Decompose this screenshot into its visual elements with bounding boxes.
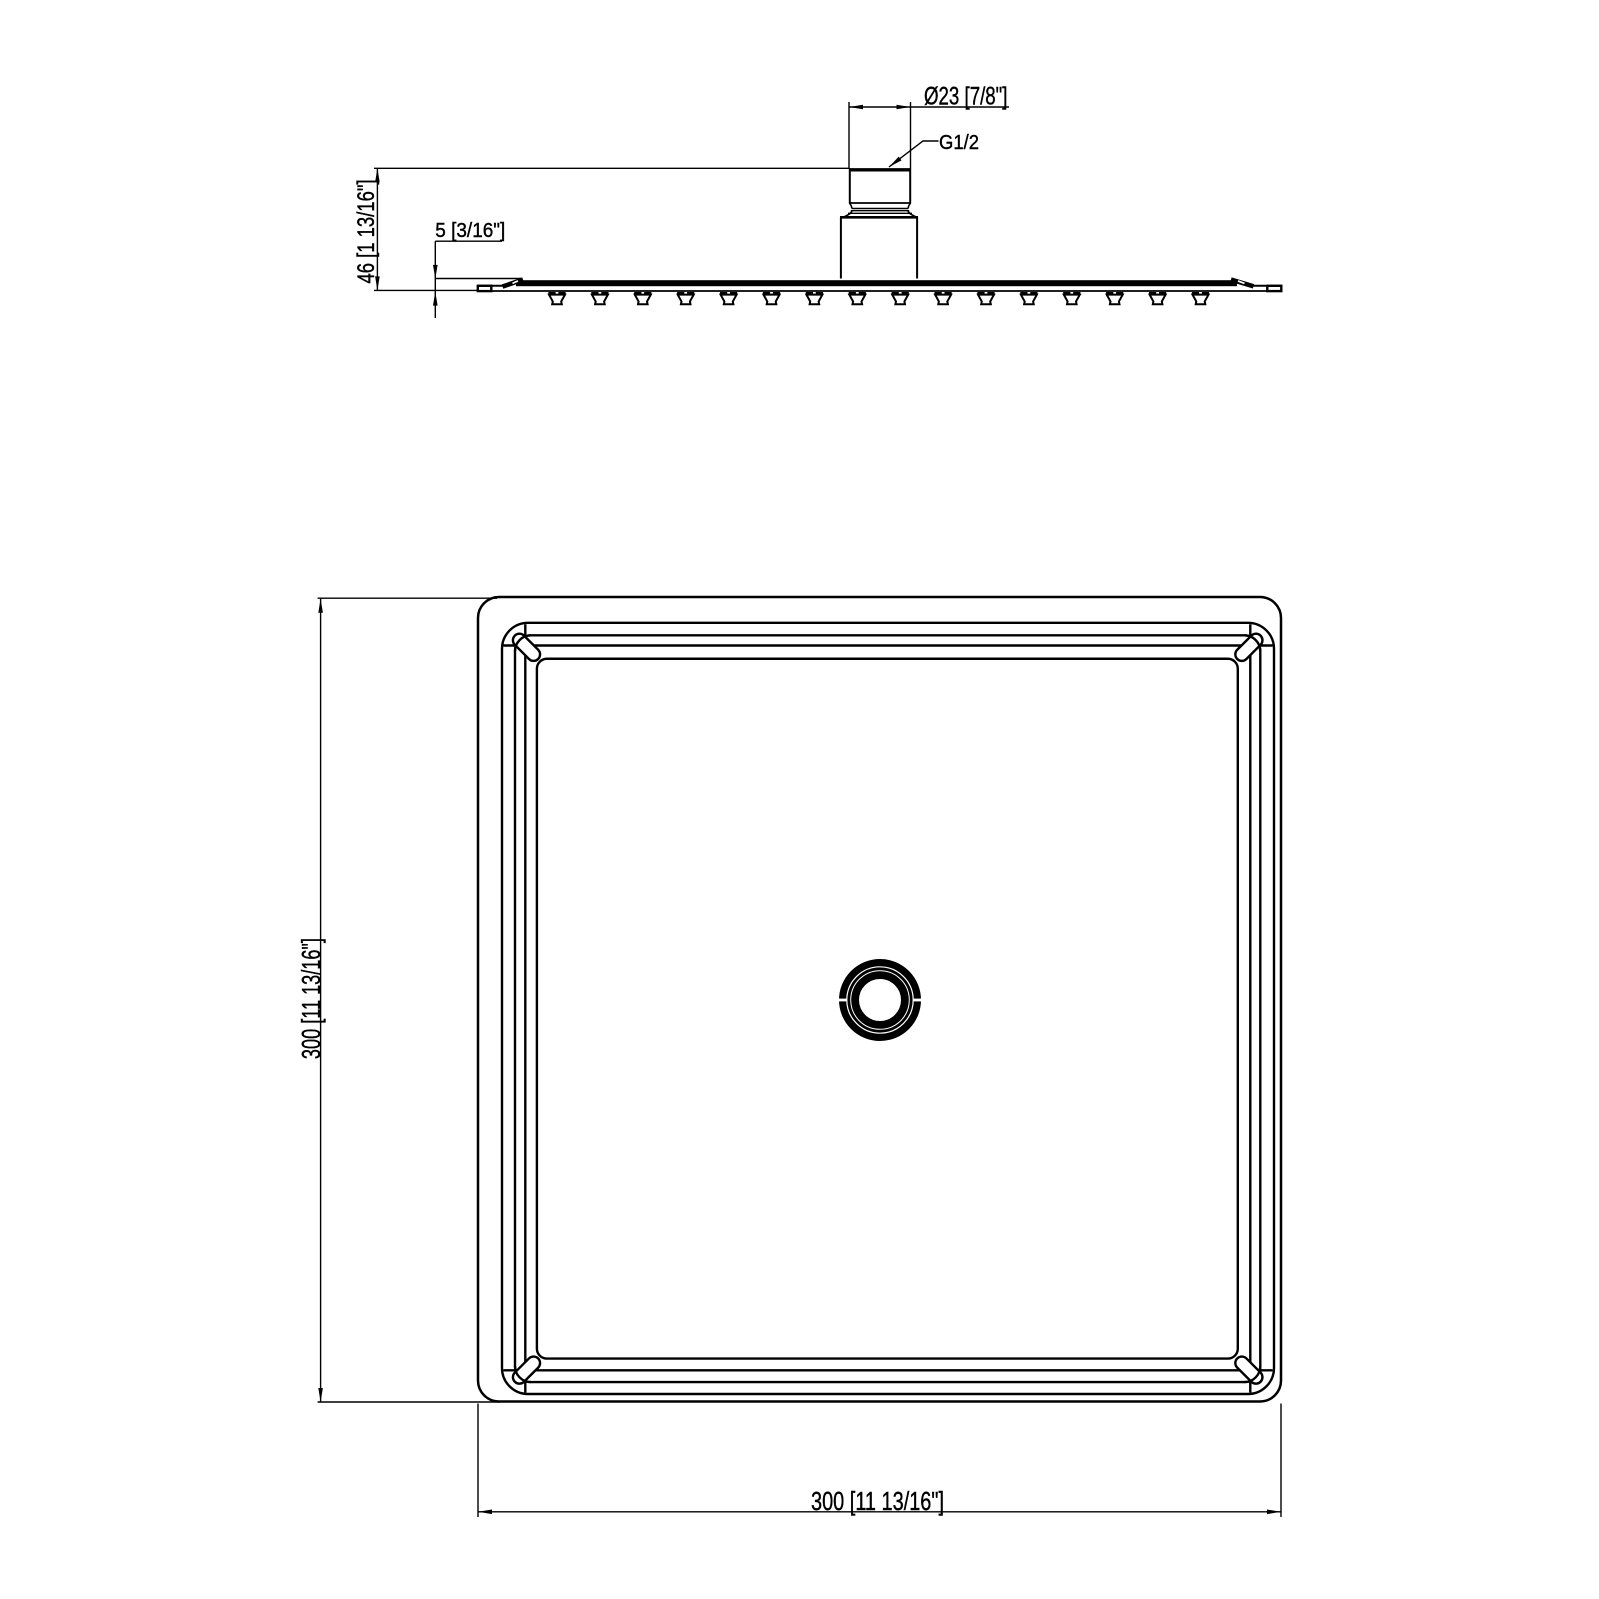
svg-text:300 [11 13/16"]: 300 [11 13/16"] — [296, 938, 326, 1059]
svg-text:300 [11 13/16"]: 300 [11 13/16"] — [811, 1486, 944, 1516]
svg-text:G1/2: G1/2 — [939, 132, 979, 154]
svg-text:Ø23 [7/8"]: Ø23 [7/8"] — [924, 83, 1008, 111]
svg-text:46 [1 13/16"]: 46 [1 13/16"] — [353, 180, 380, 284]
svg-text:5 [3/16"]: 5 [3/16"] — [435, 219, 505, 242]
